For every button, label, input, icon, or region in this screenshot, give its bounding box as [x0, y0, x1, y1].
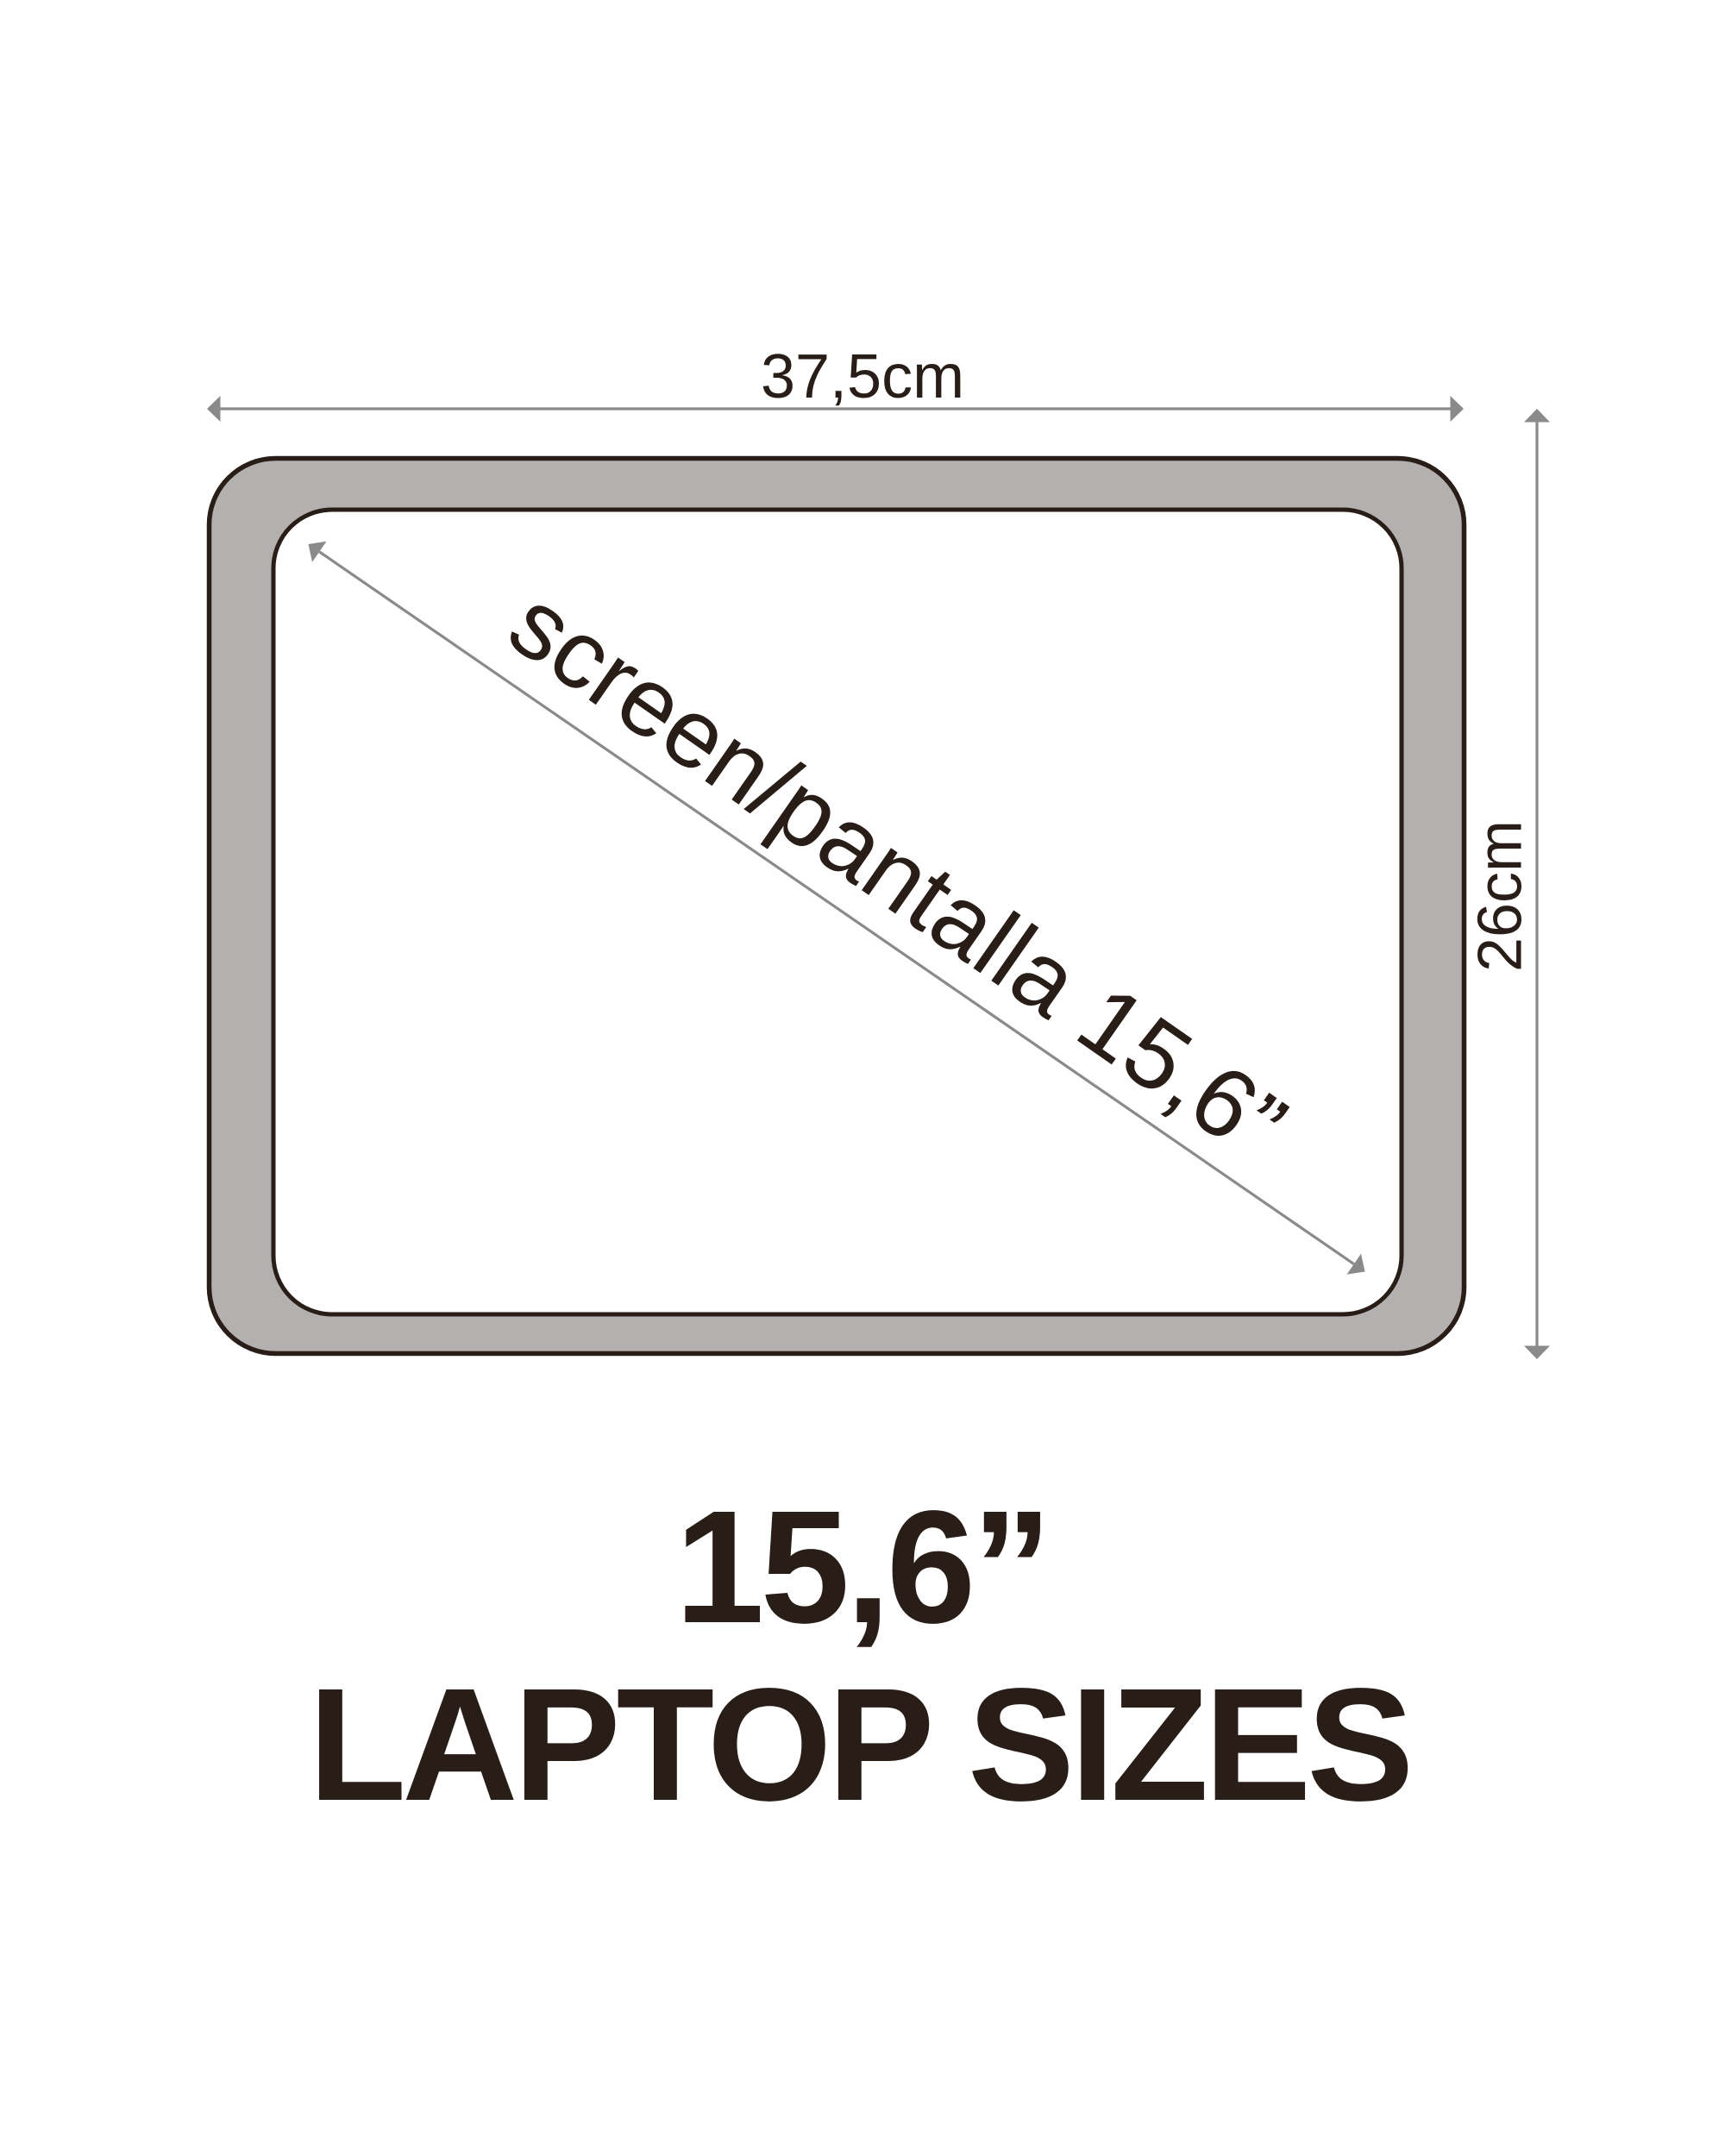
svg-text:LAPTOP SIZES: LAPTOP SIZES	[309, 1656, 1410, 1834]
svg-text:15,6”: 15,6”	[675, 1478, 1049, 1657]
svg-text:26cm: 26cm	[1466, 820, 1535, 972]
svg-text:37,5cm: 37,5cm	[761, 342, 964, 411]
